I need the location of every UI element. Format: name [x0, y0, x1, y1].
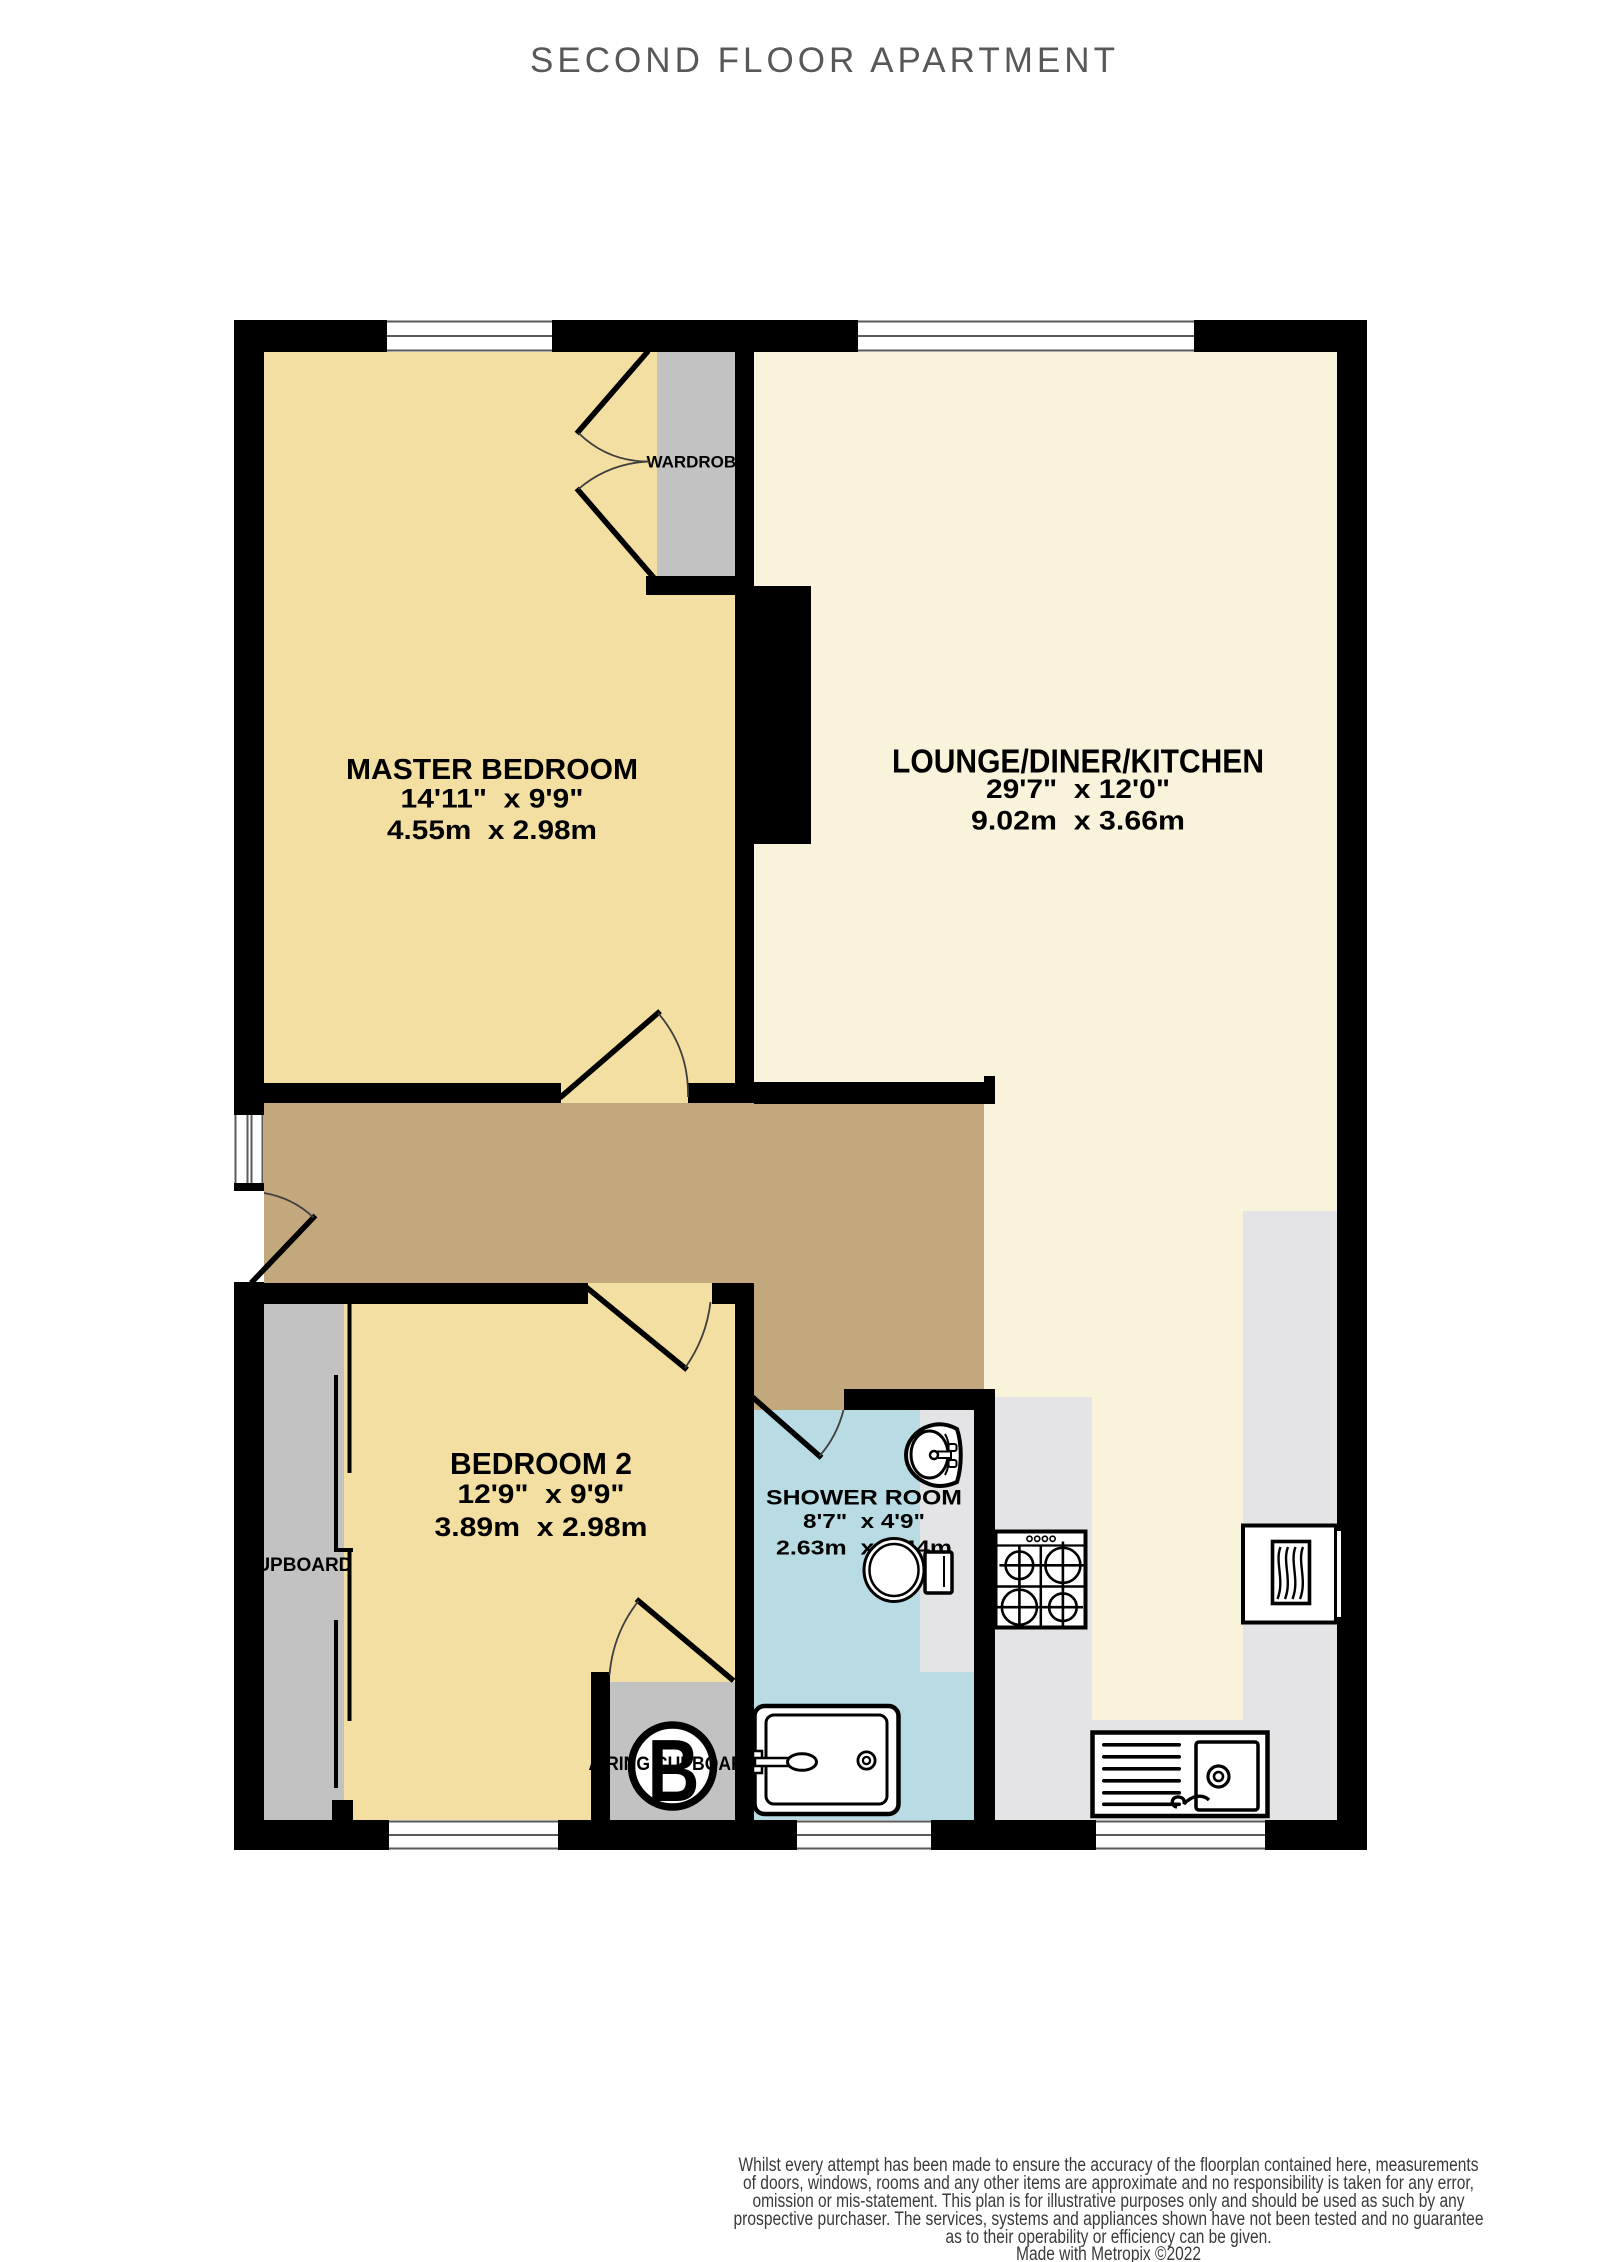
svg-text:4.55m x 2.98m: 4.55m x 2.98m [387, 815, 597, 845]
svg-text:B: B [648, 1721, 700, 1820]
svg-text:MASTER BEDROOM: MASTER BEDROOM [346, 754, 638, 786]
svg-text:9.02m x 3.66m: 9.02m x 3.66m [971, 806, 1185, 836]
svg-text:WARDROBE: WARDROBE [646, 453, 747, 472]
svg-text:29'7" x 12'0": 29'7" x 12'0" [986, 774, 1170, 804]
svg-text:12'9" x 9'9": 12'9" x 9'9" [458, 1479, 625, 1509]
svg-text:14'11" x 9'9": 14'11" x 9'9" [401, 784, 584, 814]
svg-text:3.89m x 2.98m: 3.89m x 2.98m [435, 1512, 648, 1542]
svg-text:8'7" x 4'9": 8'7" x 4'9" [803, 1511, 925, 1533]
svg-text:SECOND FLOOR APARTMENT: SECOND FLOOR APARTMENT [530, 41, 1115, 80]
svg-text:Made with Metropix ©2022: Made with Metropix ©2022 [1016, 2244, 1201, 2262]
svg-text:SHOWER ROOM: SHOWER ROOM [766, 1487, 962, 1510]
svg-text:BEDROOM 2: BEDROOM 2 [450, 1446, 632, 1481]
